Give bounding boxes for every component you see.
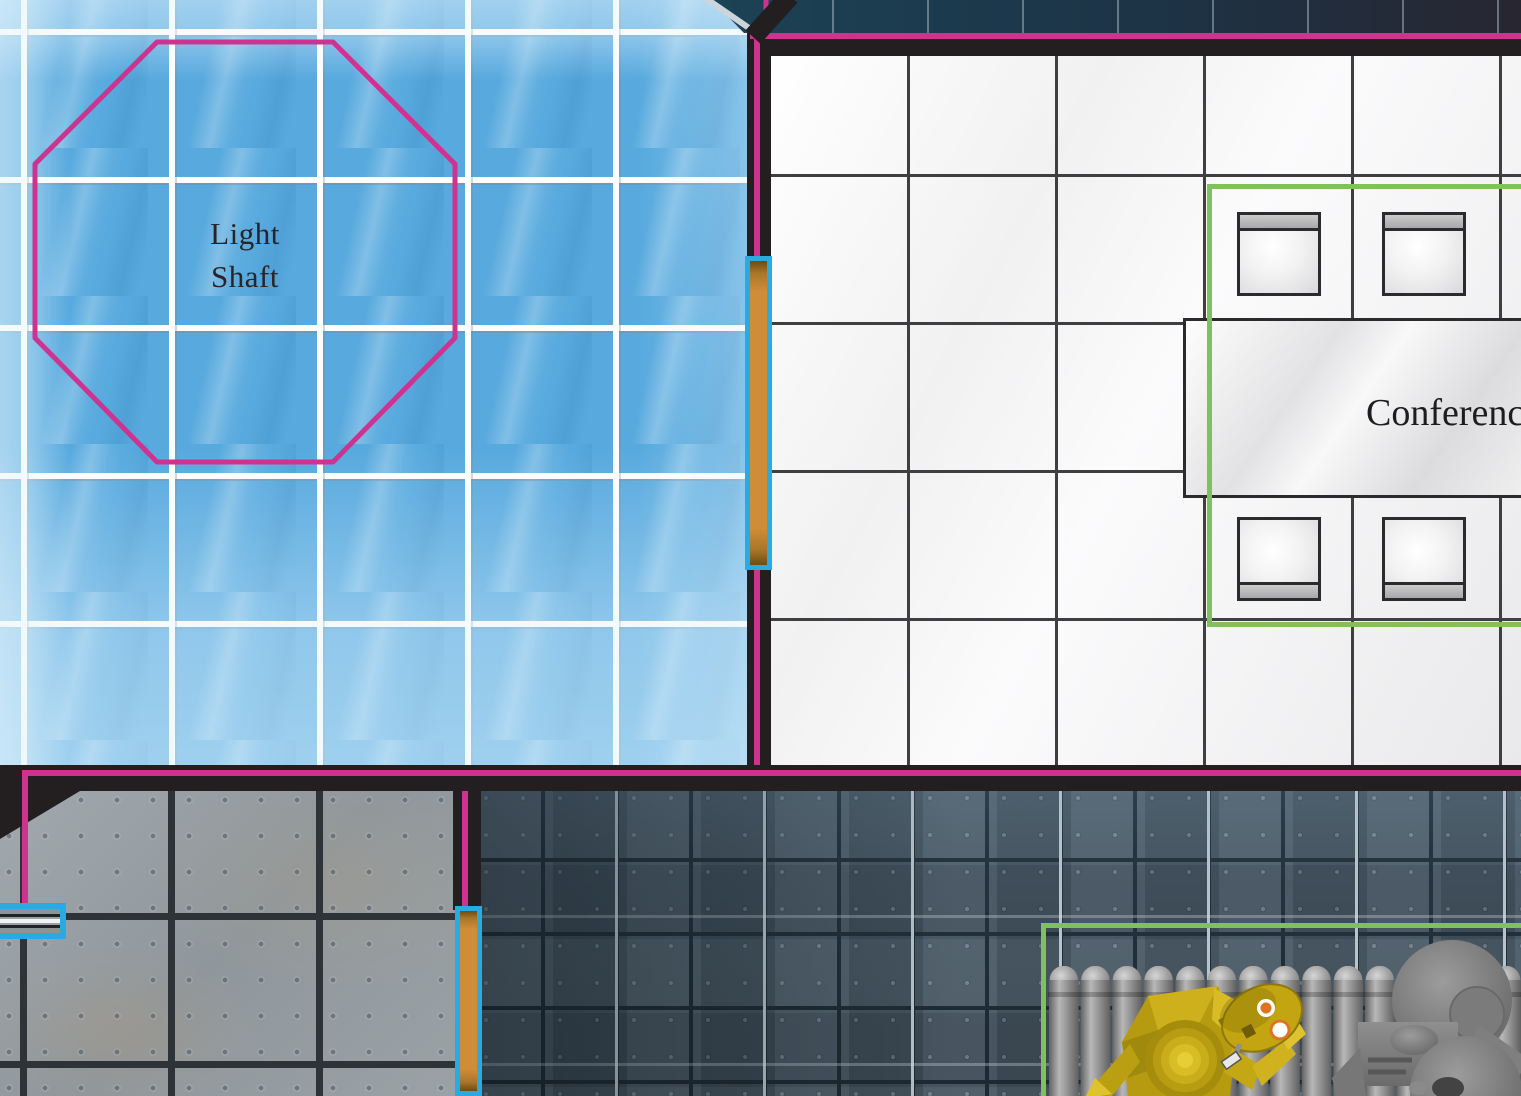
stone-floor — [0, 791, 462, 1096]
wall-bottom — [0, 765, 1521, 791]
light-shaft-octagon — [0, 0, 747, 765]
machinery-pit — [1040, 920, 1521, 1096]
door-west[interactable] — [745, 256, 772, 570]
wall-line-middle-vertical — [462, 791, 468, 907]
conference-area-highlight — [1207, 184, 1521, 627]
battle-map: Light Shaft Conference — [0, 0, 1521, 1096]
door-left-edge[interactable] — [0, 903, 66, 939]
ceiling-strip — [690, 0, 1521, 56]
door-south[interactable] — [455, 906, 482, 1096]
wall-line-bottom-left-vertical — [22, 770, 28, 906]
light-shaft-label: Light Shaft — [125, 213, 365, 299]
wall-line-bottom — [22, 770, 1521, 776]
